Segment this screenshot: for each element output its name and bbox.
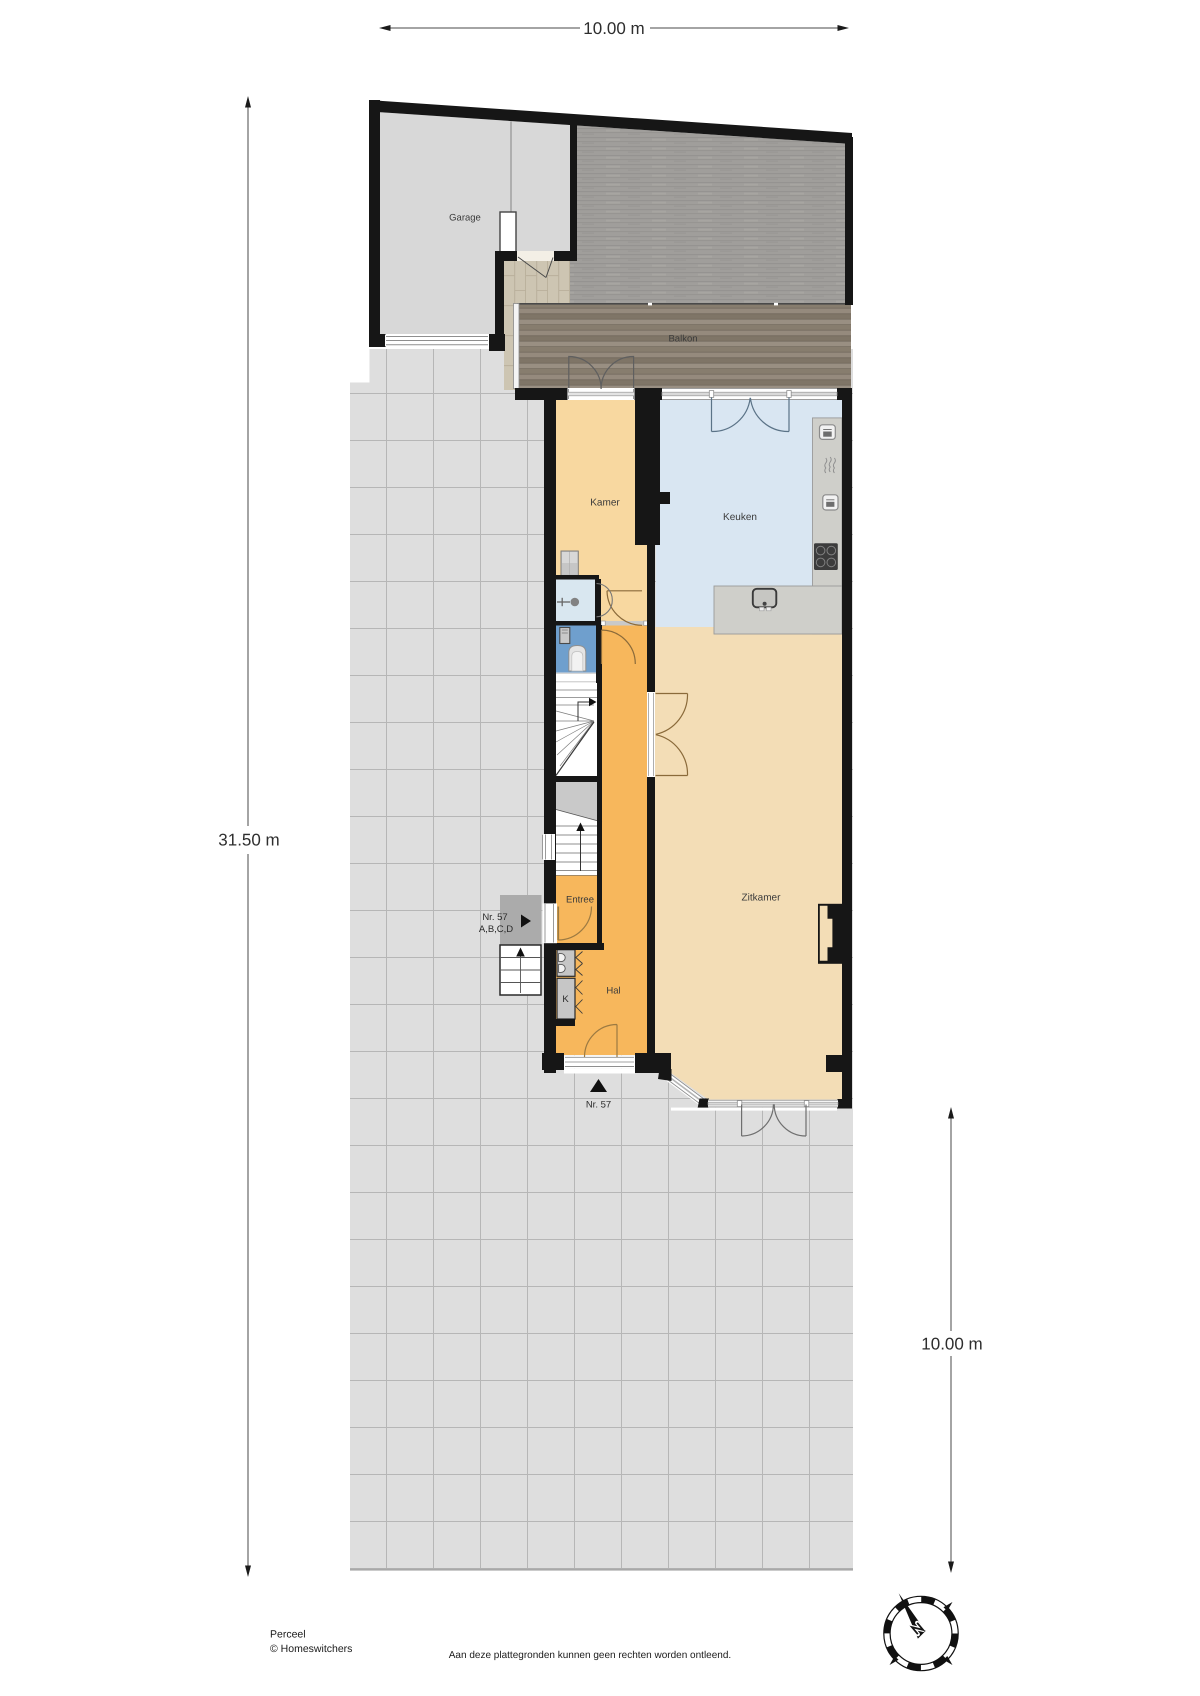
svg-text:Aan deze plattegronden kunnen: Aan deze plattegronden kunnen geen recht… (449, 1650, 731, 1661)
svg-text:K: K (562, 994, 569, 1005)
svg-text:A,B,C,D: A,B,C,D (479, 924, 513, 935)
svg-text:31.50 m: 31.50 m (218, 830, 279, 849)
svg-text:© Homeswitchers: © Homeswitchers (270, 1643, 352, 1655)
svg-text:Nr. 57: Nr. 57 (482, 912, 507, 923)
svg-text:Zitkamer: Zitkamer (742, 893, 782, 904)
svg-text:Entree: Entree (566, 895, 594, 906)
svg-text:Keuken: Keuken (723, 512, 757, 523)
svg-text:10.00 m: 10.00 m (921, 1334, 982, 1353)
svg-text:Perceel: Perceel (270, 1629, 306, 1641)
svg-text:10.00 m: 10.00 m (583, 19, 644, 38)
svg-text:Kamer: Kamer (590, 498, 620, 509)
svg-text:Balkon: Balkon (668, 334, 697, 345)
svg-text:Nr. 57: Nr. 57 (586, 1100, 611, 1111)
svg-text:Garage: Garage (449, 212, 481, 223)
svg-text:Hal: Hal (606, 986, 620, 997)
